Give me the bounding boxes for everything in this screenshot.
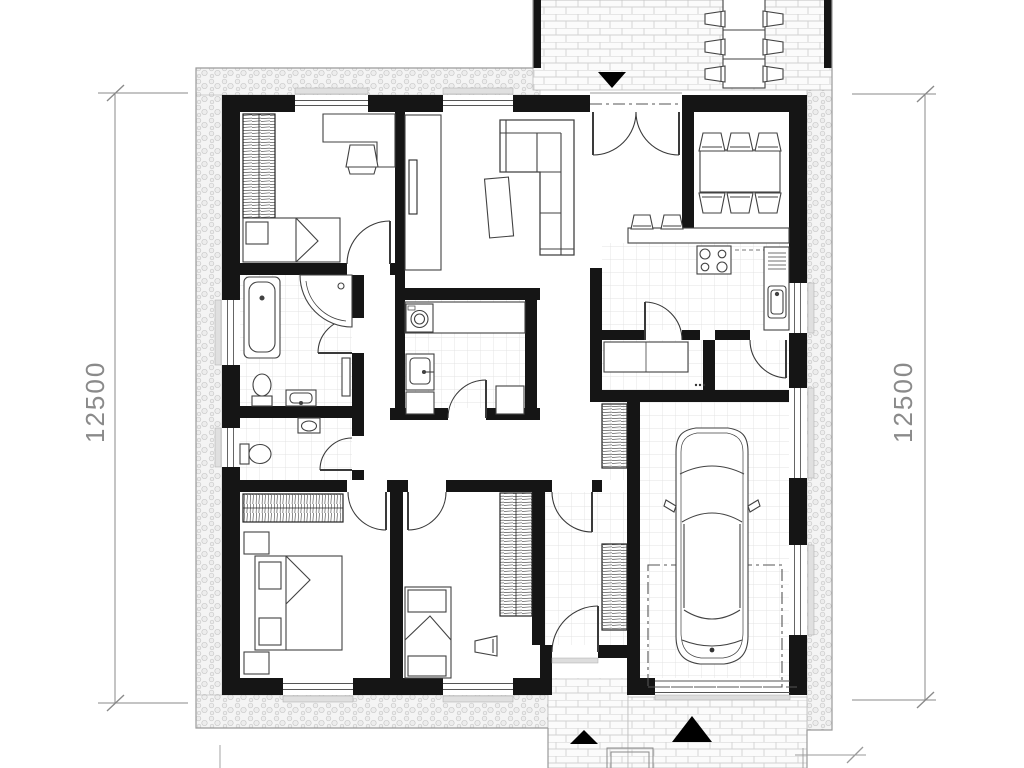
window-icon: [789, 545, 814, 635]
double-bed-icon: [255, 556, 342, 650]
wardrobe-icon: [602, 544, 627, 630]
tv-icon: [409, 160, 417, 214]
floor-plan-canvas: 12500 12500: [0, 0, 1024, 768]
kitchen-island-icon: [628, 228, 789, 243]
pillow: [246, 222, 268, 244]
terrace-paving: [533, 0, 832, 90]
floor-kitchen: [602, 243, 789, 330]
terrace-side-wall-right: [824, 0, 832, 68]
bathtub-icon: [244, 277, 280, 358]
window-icon: [295, 88, 368, 112]
gravel-apron-left: [196, 68, 222, 727]
floor-mudroom: [715, 340, 789, 390]
laundry-basket-icon: [496, 386, 524, 414]
window-icon: [215, 428, 240, 467]
utility-sink-icon: [406, 354, 434, 390]
dining-table-icon: [700, 150, 780, 192]
terrace-side-wall-left: [533, 0, 541, 68]
window-icon: [789, 388, 814, 478]
single-bed-icon: [243, 218, 340, 262]
dimension-label-right: 12500: [888, 361, 918, 443]
washbasin-icon: [298, 418, 320, 433]
radiator-icon: [342, 358, 350, 396]
pillow: [259, 562, 281, 589]
room-master-bedroom: [243, 494, 343, 674]
garden-table-icon: [723, 0, 765, 88]
washing-machine-icon: [406, 304, 433, 332]
stove-icon: [697, 246, 731, 274]
pillow: [408, 590, 446, 612]
car-icon: [664, 428, 760, 664]
dimension-right: 12500: [852, 86, 936, 708]
toilet-icon: [252, 374, 272, 406]
floor-plan-drawing: 12500 12500: [0, 0, 1024, 768]
laundry-basket-icon: [406, 392, 434, 414]
dimension-label-left: 12500: [80, 361, 110, 443]
chair-icon: [346, 145, 378, 174]
window-icon: [215, 300, 240, 365]
window-icon: [789, 283, 814, 333]
room-terrace: [705, 0, 783, 88]
washbasin-icon: [286, 390, 316, 406]
dimension-left: 12500: [80, 85, 188, 711]
window-icon: [443, 88, 513, 112]
toilet-icon: [240, 444, 271, 464]
window-icon: [283, 678, 353, 702]
single-bed-icon: [405, 587, 451, 678]
pillow: [259, 618, 281, 645]
nightstand-icon: [244, 532, 269, 554]
driveway-paving: [628, 697, 807, 768]
nightstand-icon: [244, 652, 269, 674]
threshold-dots: [695, 384, 705, 386]
coffee-table-icon: [485, 177, 514, 238]
window-icon: [443, 678, 513, 702]
wardrobe-icon: [602, 404, 627, 468]
garage-door: [648, 681, 797, 700]
